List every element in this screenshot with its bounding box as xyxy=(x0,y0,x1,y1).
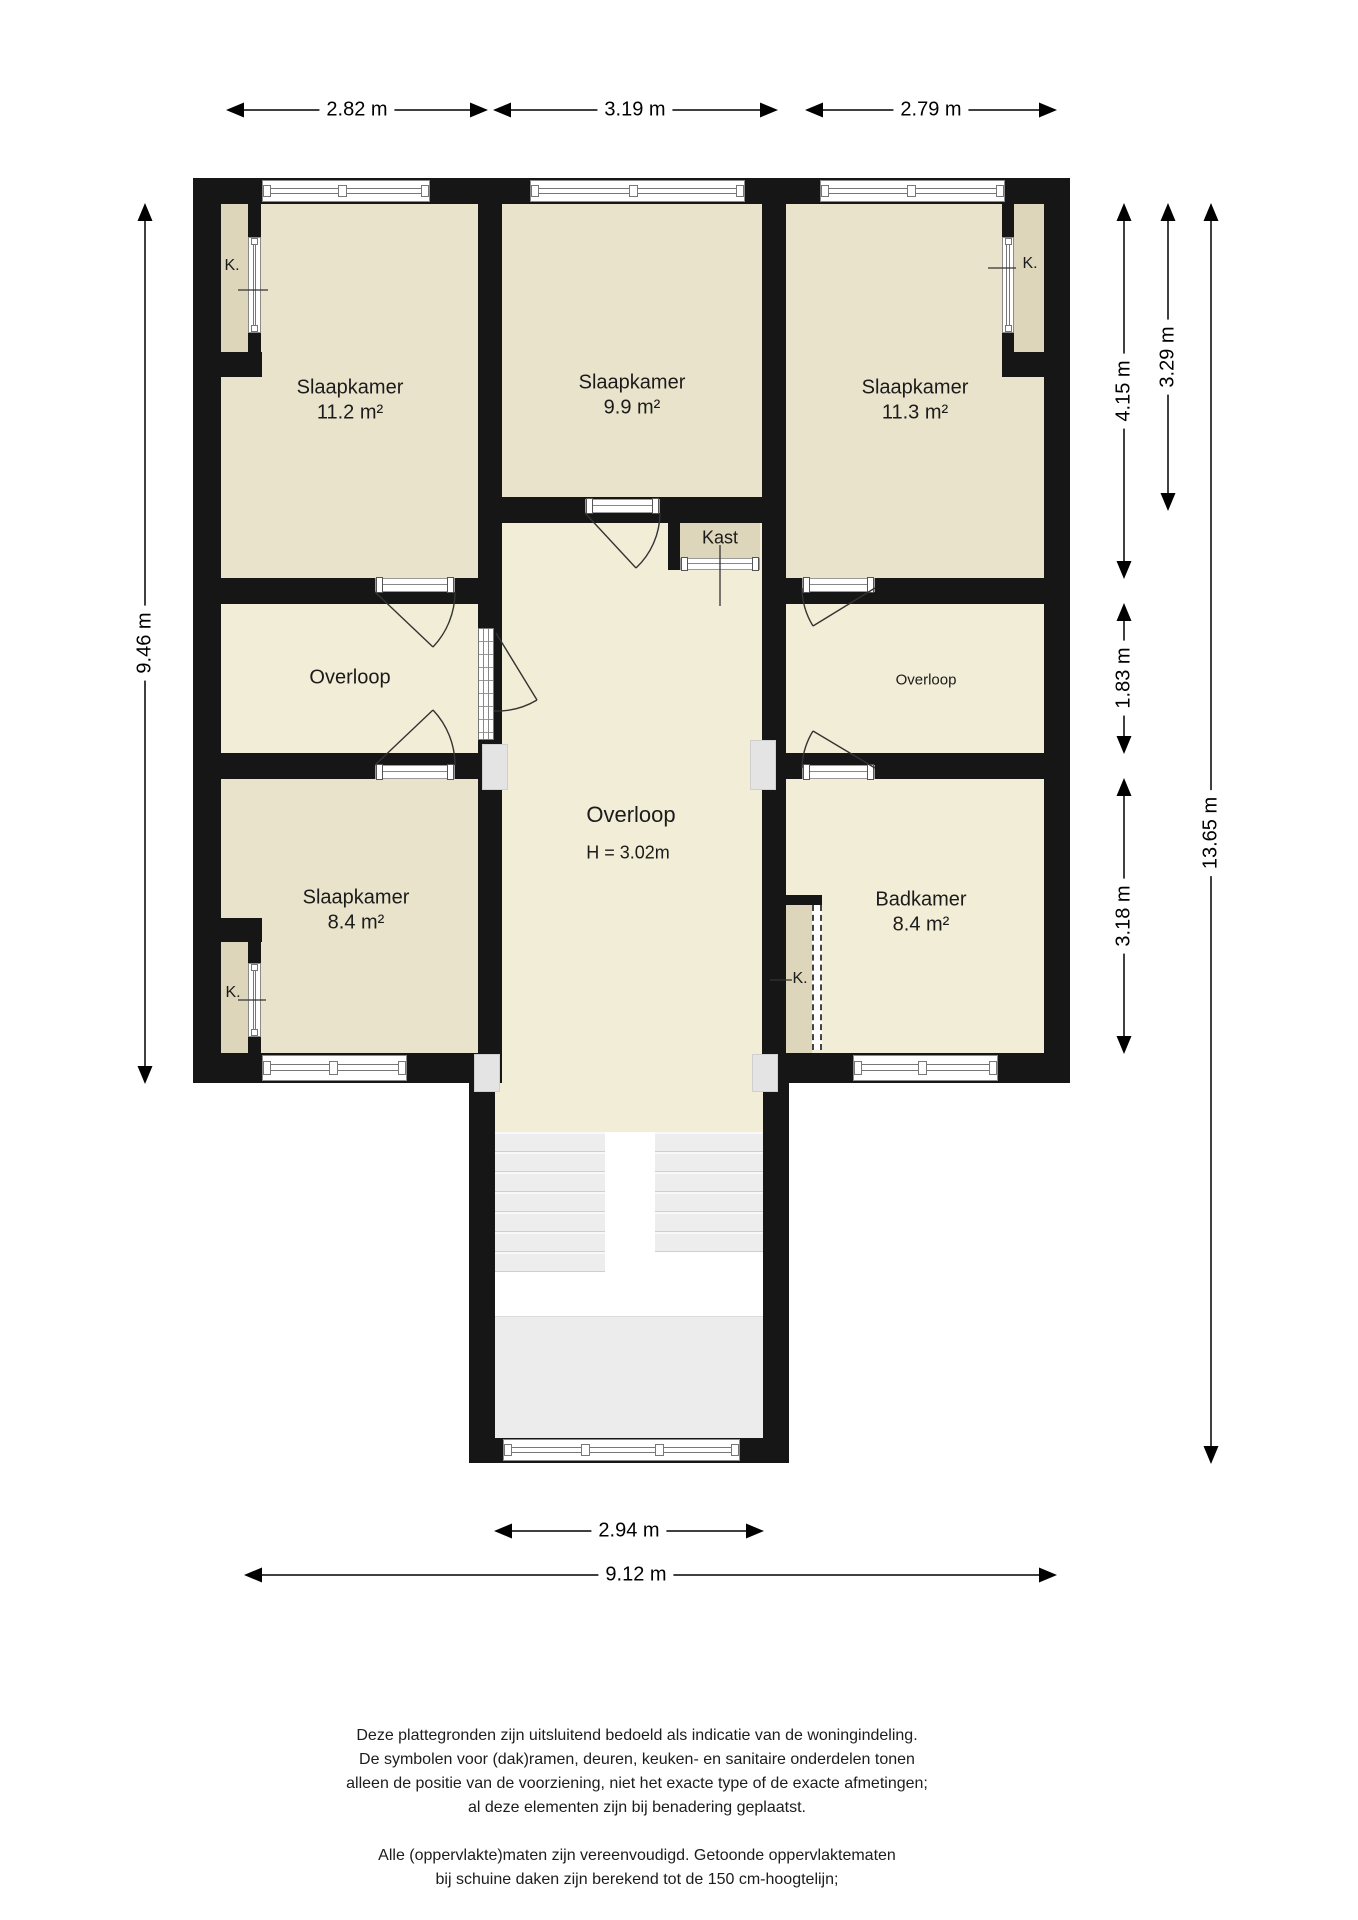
disclaimer-line-3: alleen de positie van de voorziening, ni… xyxy=(237,1772,1037,1796)
closet-label-topright: K. xyxy=(1022,255,1037,273)
closet-label-badkamer: K. xyxy=(792,970,807,988)
door-opening-slaapkamer4 xyxy=(375,765,455,779)
wall-opening-block-left-bottom xyxy=(474,1054,500,1092)
stairs-landing xyxy=(495,1316,763,1438)
floorplan-page: Slaapkamer 11.2 m² Slaapkamer 9.9 m² Sla… xyxy=(0,0,1358,1920)
dim-label-right-4: 3.18 m xyxy=(1113,878,1136,953)
wall-closet-bottomleft-fill1 xyxy=(248,942,261,963)
window-stairwell xyxy=(503,1439,740,1461)
dim-label-bottom-stair: 2.94 m xyxy=(591,1520,666,1543)
wall-stair-right xyxy=(763,1083,789,1463)
wall-closet-topleft-fill2 xyxy=(248,333,261,352)
wall-stair-left xyxy=(469,1083,495,1463)
wall-right-outer xyxy=(1044,178,1070,1083)
disclaimer-line-4: al deze elementen zijn bij benadering ge… xyxy=(237,1796,1037,1820)
notes-line-2: bij schuine daken zijn berekend tot de 1… xyxy=(237,1868,1037,1892)
room-area-slaapkamer-1: 11.2 m² xyxy=(317,402,383,425)
room-height-note: H = 3.02m xyxy=(586,843,670,864)
wall-closet-topright-fill1 xyxy=(1002,204,1014,237)
closet-door-topright xyxy=(1002,237,1014,333)
room-label-slaapkamer-1: Slaapkamer xyxy=(297,377,404,400)
room-label-overloop-right: Overloop xyxy=(896,672,957,689)
stairwell-floor-strip xyxy=(495,1083,763,1132)
wall-closet-bottomleft-stub xyxy=(193,918,262,942)
closet-topleft-fill xyxy=(221,204,250,352)
room-area-slaapkamer-2: 9.9 m² xyxy=(604,397,661,420)
dim-label-top-2: 3.19 m xyxy=(597,99,672,122)
window-bottom-room4 xyxy=(262,1055,407,1081)
closet-door-badkamer-sliding xyxy=(812,905,822,1050)
wall-center-right xyxy=(762,204,786,1083)
dim-label-bottom-total: 9.12 m xyxy=(598,1564,673,1587)
door-opening-kast xyxy=(680,558,760,570)
room-label-overloop-central: Overloop xyxy=(586,802,675,828)
room-label-slaapkamer-3: Slaapkamer xyxy=(862,377,969,400)
room-label-slaapkamer-2: Slaapkamer xyxy=(579,372,686,395)
wall-opening-block-right-bottom xyxy=(752,1054,778,1092)
wall-closet-topleft-fill1 xyxy=(248,204,261,237)
wall-closet-badkamer-stub xyxy=(786,895,822,905)
closet-door-bottomleft xyxy=(248,963,261,1037)
room-area-slaapkamer-3: 11.3 m² xyxy=(882,402,948,425)
dim-label-right-2: 3.29 m xyxy=(1157,319,1180,394)
closet-door-topleft xyxy=(248,237,261,333)
room-label-overloop-left: Overloop xyxy=(309,667,390,690)
closet-label-bottomleft: K. xyxy=(225,984,240,1002)
dim-label-right-total: 13.65 m xyxy=(1200,790,1223,876)
wall-kast-left xyxy=(668,515,680,570)
room-area-badkamer: 8.4 m² xyxy=(893,914,950,937)
wall-closet-bottomleft-fill2 xyxy=(248,1037,261,1053)
wall-opening-block-left-mid xyxy=(482,744,508,790)
door-opening-slaapkamer2 xyxy=(585,499,660,513)
disclaimer-line-2: De symbolen voor (dak)ramen, deuren, keu… xyxy=(237,1748,1037,1772)
room-label-badkamer: Badkamer xyxy=(875,889,966,912)
wall-opening-block-right-mid xyxy=(750,740,776,790)
notes-line-1: Alle (oppervlakte)maten zijn vereenvoudi… xyxy=(237,1844,1037,1868)
wall-closet-topright-fill2 xyxy=(1002,333,1014,352)
wall-left-outer xyxy=(193,178,221,1083)
window-top-room3 xyxy=(820,180,1005,202)
door-opening-badkamer xyxy=(802,765,875,779)
room-label-kast: Kast xyxy=(702,528,738,549)
door-glass-overloop xyxy=(478,628,494,740)
window-top-room2 xyxy=(530,180,745,202)
window-badkamer xyxy=(853,1055,998,1081)
room-slaapkamer-2-fill xyxy=(502,204,762,497)
dim-label-left-total: 9.46 m xyxy=(134,605,157,680)
closet-label-topleft: K. xyxy=(224,257,239,275)
dim-label-top-1: 2.82 m xyxy=(319,99,394,122)
door-opening-slaapkamer1 xyxy=(375,578,455,592)
closet-topright-fill xyxy=(1014,204,1044,352)
dim-label-right-3: 1.83 m xyxy=(1113,640,1136,715)
room-area-slaapkamer-4: 8.4 m² xyxy=(328,912,385,935)
wall-closet-topleft-stub xyxy=(193,352,262,377)
disclaimer-line-1: Deze plattegronden zijn uitsluitend bedo… xyxy=(237,1724,1037,1748)
footer-text: Deze plattegronden zijn uitsluitend bedo… xyxy=(237,1724,1037,1920)
window-top-room1 xyxy=(262,180,430,202)
dim-label-right-1: 4.15 m xyxy=(1113,353,1136,428)
room-label-slaapkamer-4: Slaapkamer xyxy=(303,887,410,910)
dim-label-top-3: 2.79 m xyxy=(893,99,968,122)
wall-closet-topright-stub xyxy=(1002,352,1070,377)
door-opening-slaapkamer3 xyxy=(802,578,875,592)
